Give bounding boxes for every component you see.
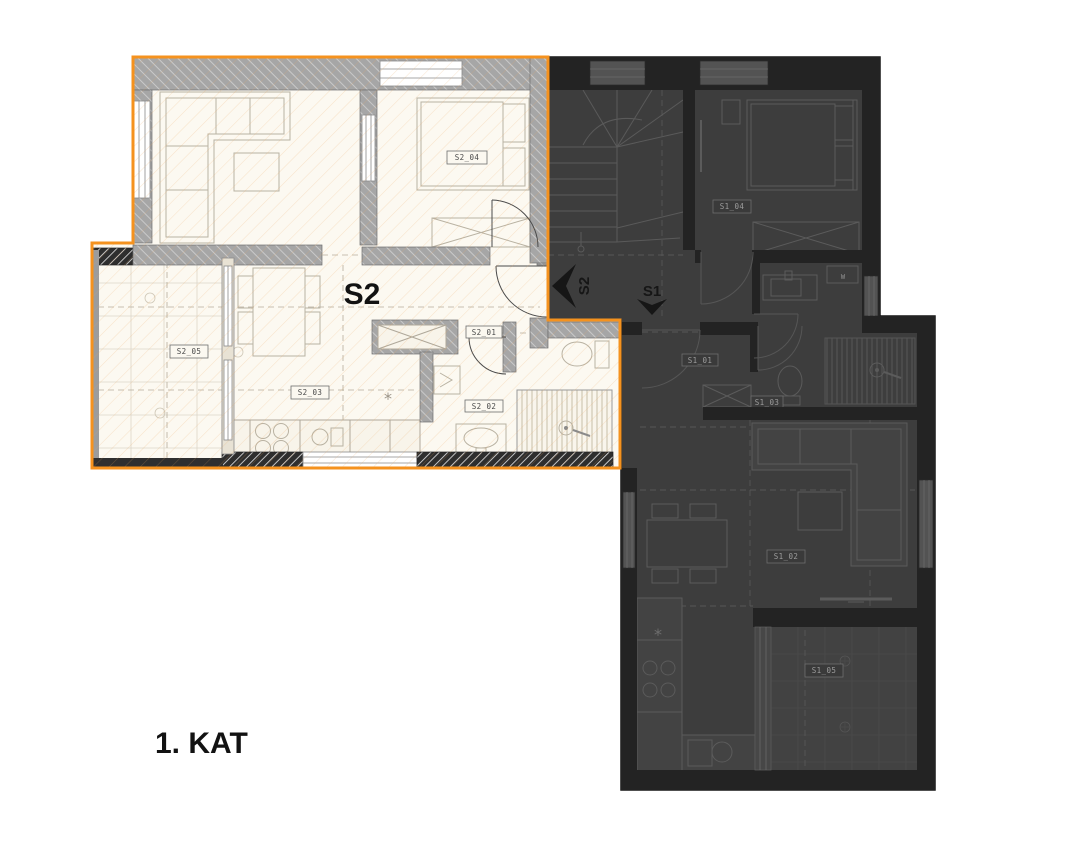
svg-text:S2_01: S2_01 xyxy=(472,328,497,337)
room-label-s2-04: S2_04 xyxy=(447,151,487,164)
terrace-glazing xyxy=(755,627,771,770)
room-label-s1-05: S1_05 xyxy=(805,664,843,677)
s2-apartment-name: S2 xyxy=(344,278,381,311)
room-label-s1-02: S1_02 xyxy=(767,550,805,563)
svg-text:S1_02: S1_02 xyxy=(774,552,799,561)
s1-terrace-floor xyxy=(771,627,917,770)
svg-text:S1_01: S1_01 xyxy=(688,356,713,365)
room-label-s2-02: S2_02 xyxy=(465,400,503,412)
svg-text:S2_05: S2_05 xyxy=(177,347,202,356)
s2-hatch-overlay xyxy=(92,57,620,468)
svg-text:S2_04: S2_04 xyxy=(455,153,480,162)
floor-plan-page: W S1_03 xyxy=(0,0,1065,860)
floor-plan-drawing: W S1_03 xyxy=(0,0,1065,860)
floor-title: 1. KAT xyxy=(155,727,248,760)
s2-entrance-label: S2 xyxy=(576,277,593,295)
room-label-s1-04: S1_04 xyxy=(713,200,751,213)
room-label-s2-05: S2_05 xyxy=(170,345,208,358)
room-label-s2-03: S2_03 xyxy=(291,386,329,399)
room-label-s1-01: S1_01 xyxy=(682,354,718,366)
svg-text:S1_04: S1_04 xyxy=(720,202,745,211)
apartment-s2: * xyxy=(92,57,620,468)
svg-text:S1_05: S1_05 xyxy=(812,666,837,675)
room-label-s2-01: S2_01 xyxy=(466,326,502,338)
s1-entrance-label: S1 xyxy=(643,283,661,300)
room-label-s1-03: S1_03 xyxy=(751,396,783,408)
svg-text:S1_03: S1_03 xyxy=(755,398,780,407)
vent-symbol: * xyxy=(654,625,662,644)
svg-text:S2_02: S2_02 xyxy=(472,402,497,411)
svg-text:S2_03: S2_03 xyxy=(298,388,323,397)
